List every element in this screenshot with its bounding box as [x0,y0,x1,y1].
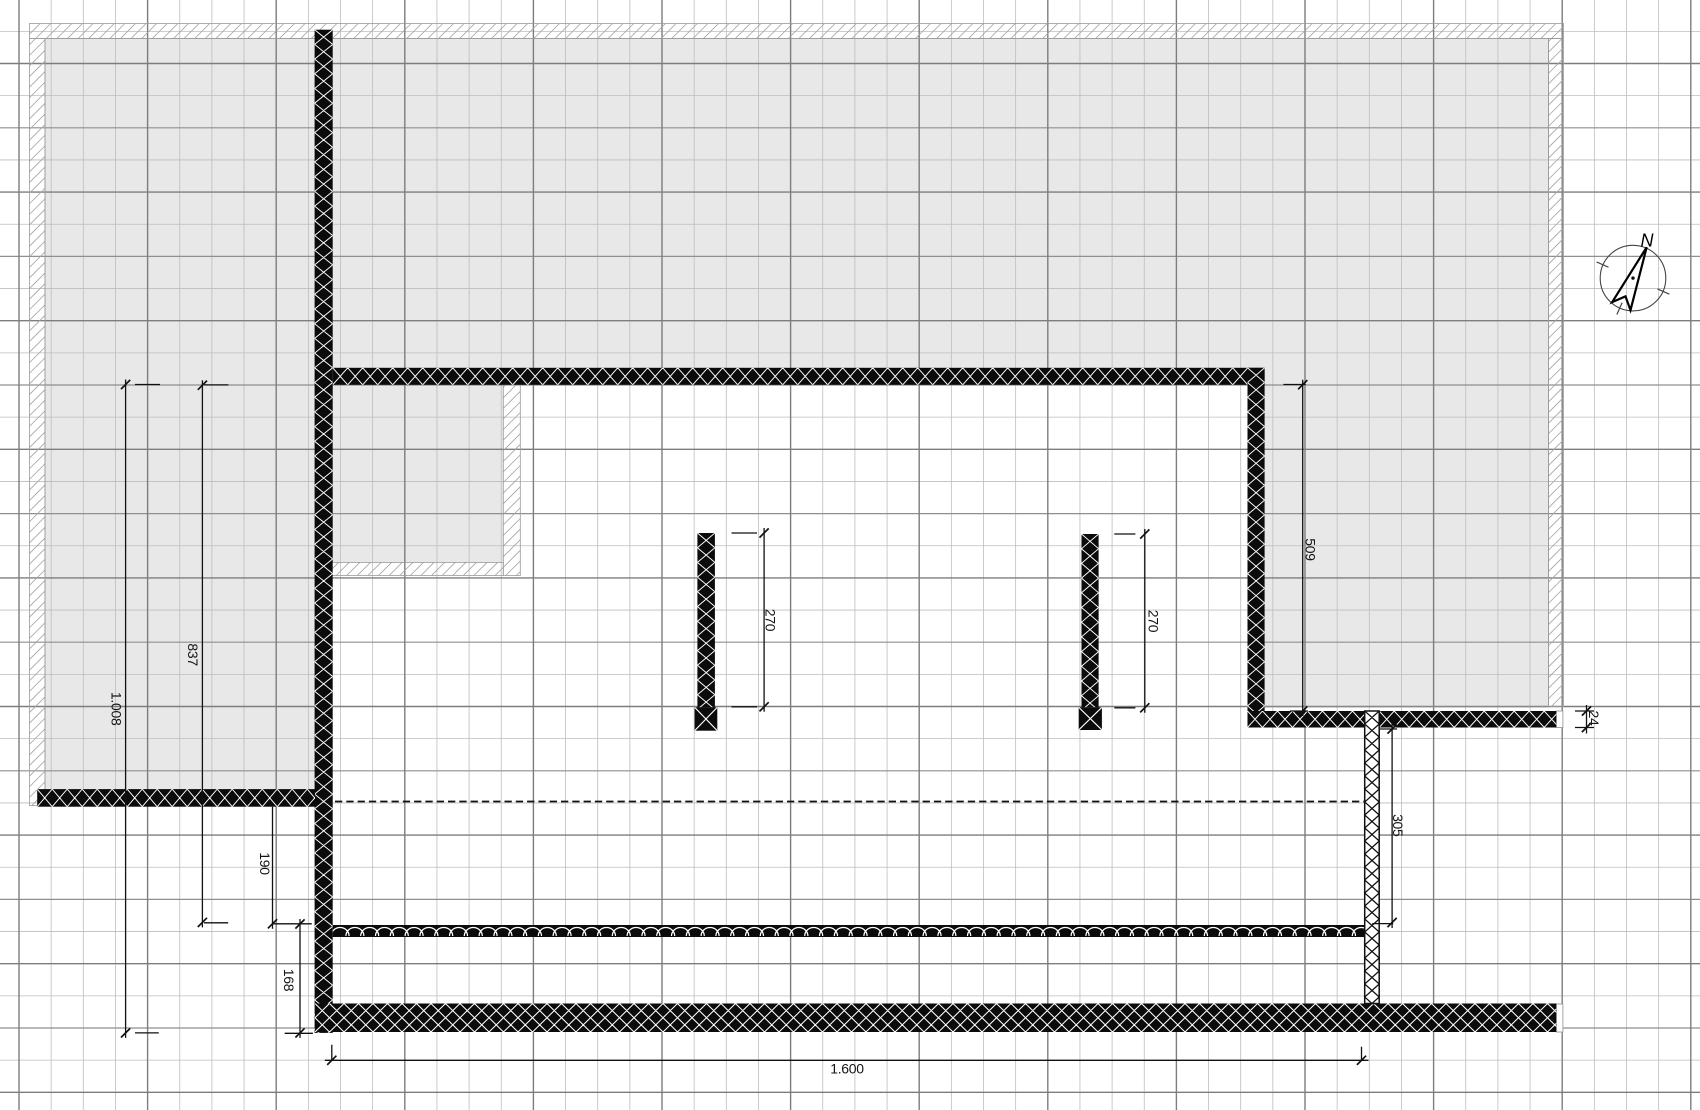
svg-text:1.600: 1.600 [830,1060,864,1076]
svg-text:24: 24 [1586,711,1602,726]
svg-text:190: 190 [257,852,273,875]
svg-text:168: 168 [281,969,297,992]
svg-text:305: 305 [1390,814,1406,837]
svg-text:270: 270 [763,609,779,632]
svg-text:1.008: 1.008 [109,692,125,726]
svg-text:270: 270 [1146,610,1162,633]
svg-text:509: 509 [1302,538,1318,561]
svg-text:837: 837 [185,643,201,666]
svg-text:N: N [1641,231,1655,251]
